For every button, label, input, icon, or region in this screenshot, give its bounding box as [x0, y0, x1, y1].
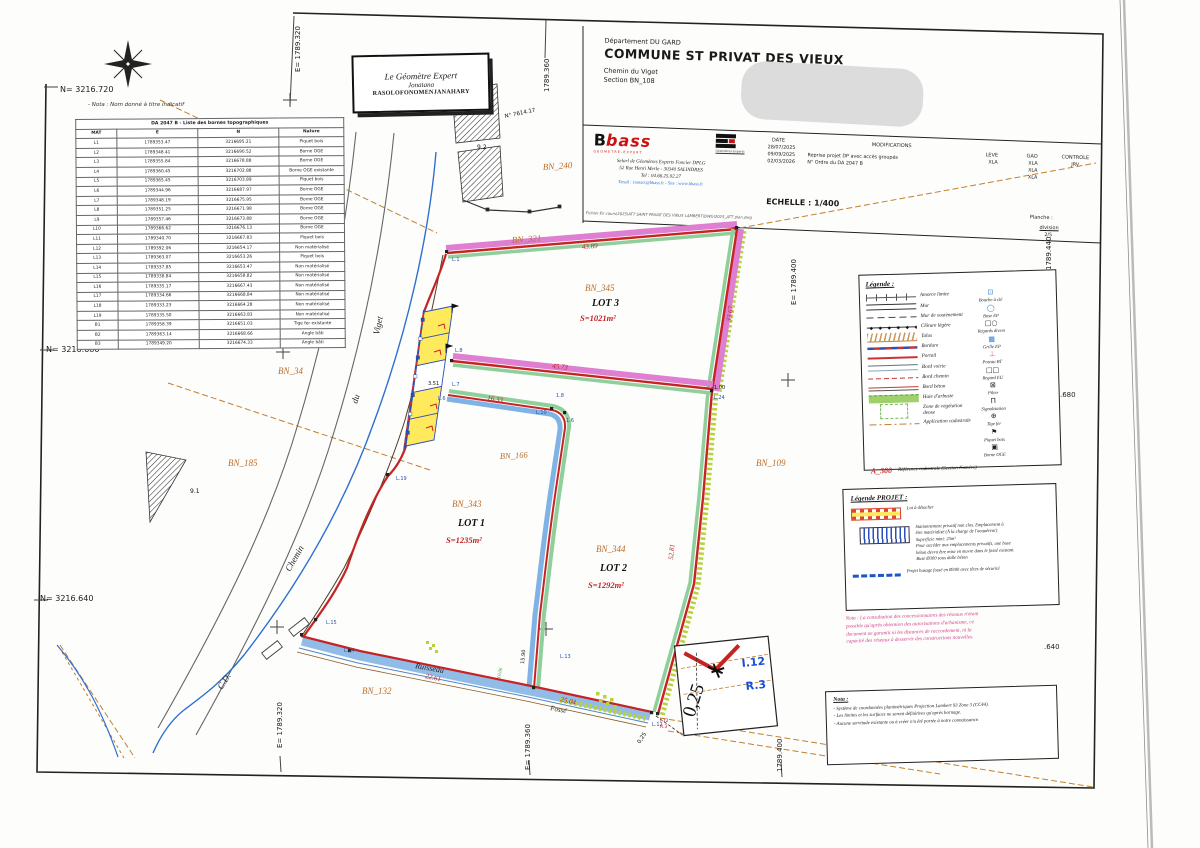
- legend-item-label: Zone de végétation dense: [923, 404, 971, 416]
- table-cell: L6: [76, 186, 117, 196]
- redaction-blob: [740, 60, 925, 128]
- legend-symbol-item: ◯Buse EP: [970, 304, 1011, 318]
- table-cell: 1789351.25: [117, 205, 198, 215]
- plan-label: 1.8: [556, 393, 564, 399]
- table-cell: 3216687.97: [198, 185, 279, 195]
- plan-label: Viget: [371, 315, 385, 335]
- plan-label: LOT 2: [599, 563, 627, 574]
- ge-logo: Géomètres-Experts: [716, 134, 746, 154]
- legend-title: Légende :: [865, 275, 1049, 288]
- plan-label: L.8: [455, 348, 463, 354]
- table-cell: Non matérialisé: [280, 281, 345, 291]
- plan-label: BN_321: [511, 233, 541, 245]
- legend-symbol-item: □□Regard EU: [972, 366, 1013, 380]
- plan-label: BN_345: [585, 283, 615, 293]
- table-cell: 3216675.95: [198, 195, 279, 205]
- table-cell: 3216653.47: [199, 262, 280, 272]
- stamp-lastname: RASOLOFONOMENJANAHARY: [373, 87, 470, 96]
- plan-label: L.24: [714, 395, 725, 401]
- table-cell: 1789358.39: [118, 320, 199, 330]
- address-label: Chemin du Viget: [604, 67, 658, 77]
- legend-item-label: Bord béton: [922, 384, 945, 390]
- table-cell: 3216674.33: [199, 339, 280, 349]
- table-cell: L7: [76, 196, 117, 206]
- plan-label: N= 3216.640: [40, 594, 93, 603]
- legend-item-label: Talus: [921, 334, 932, 340]
- table-cell: L12: [77, 244, 118, 254]
- legend-symbol-item: ⚑Piquet bois: [974, 428, 1015, 442]
- table-cell: 1789344.96: [117, 186, 198, 196]
- cloture-line-sample: [867, 323, 917, 331]
- plan-label: BN_166: [500, 450, 529, 461]
- table-cell: 3216671.98: [198, 204, 279, 214]
- plan-label: BN_343: [452, 499, 482, 509]
- plan-label: 52.81: [667, 544, 676, 560]
- project-item-text: Projet busage fossé en Ø300 avec têtes d…: [907, 565, 1000, 574]
- plan-label: L.1: [452, 257, 460, 263]
- plan-label: N= 3216.720: [60, 85, 113, 94]
- legend-item-label: Mur de soutènement: [920, 313, 962, 320]
- table-cell: 1789366.62: [117, 224, 198, 234]
- table-cell: 1789338.84: [118, 272, 199, 282]
- legend-symbol-label: Bouche à clé: [979, 297, 1003, 303]
- plan-label: 1789.440: [1045, 237, 1053, 270]
- plan-label: 45.73: [552, 362, 569, 372]
- legend-symbol-label: Regard EU: [982, 375, 1003, 381]
- table-cell: L15: [77, 273, 118, 283]
- mursout-line-sample: [866, 313, 916, 321]
- parking-stalls: [404, 304, 458, 450]
- plan-label: - Nota : Nom donné à titre indicatif: [88, 101, 185, 108]
- plan-label: 1789.360: [543, 59, 551, 92]
- table-cell: 1789335.50: [118, 310, 199, 320]
- legend-box: Légende : Amorce limiteMurMur de soutène…: [858, 269, 1061, 470]
- table-cell: 1789363.14: [118, 330, 199, 340]
- table-cell: L13: [77, 253, 118, 263]
- mur-line-sample: [866, 303, 916, 310]
- plan-label: I.12: [660, 718, 669, 724]
- plan-label: S=1021m²: [580, 313, 616, 323]
- planche-name: division: [1039, 225, 1058, 232]
- plan-label: E= 1789.360: [524, 724, 532, 770]
- table-cell: 3216664.28: [199, 300, 280, 310]
- plan-label: du: [349, 392, 361, 404]
- coordinate-table: DA 2047 B - Liste des bornes topographiq…: [75, 117, 346, 350]
- zoneveg-line-sample: [880, 404, 908, 420]
- legend-item-label: Mur: [920, 303, 929, 309]
- date-column-label: DATE: [772, 137, 785, 143]
- table-cell: L1: [76, 138, 117, 148]
- hatched-triangle: [146, 452, 186, 522]
- table-cell: L19: [77, 311, 118, 321]
- table-cell: 1789348.41: [117, 147, 198, 157]
- table-cell: B1: [77, 321, 118, 331]
- legend-symbol-item: ▦Grille EP: [971, 335, 1012, 349]
- table-cell: Borne OGE existante: [279, 166, 344, 176]
- file-path-line: Fichier En cours\2025\ATT SAINT PRIVAT D…: [586, 210, 752, 220]
- plan-label: 15.90: [520, 649, 527, 664]
- project-legend-items: Lot à détacherStationnement privatif non…: [851, 501, 1051, 577]
- table-cell: 1789355.84: [117, 157, 198, 167]
- table-cell: Piquet bois: [279, 233, 344, 243]
- gao-values: XLAXLAXLA: [1028, 161, 1038, 182]
- table-cell: 1789340.70: [118, 234, 199, 244]
- plan-label: 1.00: [714, 385, 725, 391]
- bbass-tagline: GEOMETRE-EXPERT: [593, 149, 651, 155]
- column-header: E: [117, 128, 198, 138]
- legend-symbol-item: □○Regards divers: [971, 320, 1012, 334]
- legend-item-label: Application cadastrale: [923, 419, 971, 426]
- project-legend-item: Projet busage fossé en Ø300 avec têtes d…: [853, 564, 1051, 578]
- legend-symbol-items: ⊡Bouche à clé◯Buse EP□○Regards divers▦Gr…: [968, 287, 1055, 460]
- table-cell: 3216653.26: [199, 252, 280, 262]
- bbass-logo: Bbass GEOMETRE-EXPERT: [593, 130, 651, 155]
- beton-line-sample: [868, 384, 918, 392]
- table-cell: 3216695.21: [198, 137, 279, 147]
- table-cell: L3: [76, 158, 117, 168]
- table-cell: L16: [77, 282, 118, 292]
- plan-label: Fossé: [549, 704, 568, 715]
- table-cell: 1789392.06: [118, 243, 199, 253]
- table-cell: 3216651.03: [199, 319, 280, 329]
- legend-symbol-label: Signalisation: [981, 406, 1005, 412]
- plan-label: E= 1789.320: [276, 702, 284, 748]
- plan-label: BN_344: [596, 544, 626, 554]
- regard-eu-icon: □□: [986, 367, 999, 374]
- legend-item-label: Bord chemin: [922, 374, 949, 380]
- legend-symbol-item: ΠSignalisation: [973, 397, 1014, 411]
- table-cell: 1789363.07: [118, 253, 199, 263]
- revision-date: 02/03/2026: [767, 159, 795, 167]
- plan-label: L.19: [396, 476, 407, 482]
- revision-dates: 28/07/202509/09/202502/03/2026: [767, 145, 795, 167]
- plan-label: L.14: [344, 648, 355, 654]
- column-header: N: [198, 128, 279, 138]
- plan-label: BN_109: [756, 458, 786, 468]
- cadastral-reference-label: Référence cadastrale (Section Numéro): [898, 466, 977, 473]
- table-cell: Borne OGE: [279, 194, 344, 204]
- plan-label: L.15: [326, 620, 337, 626]
- table-cell: 3216654.17: [199, 243, 280, 253]
- table-cell: 3216663.83: [199, 310, 280, 320]
- table-cell: 3216702.88: [198, 166, 279, 176]
- table-cell: Non matérialisé: [280, 242, 345, 252]
- table-cell: Angle bâti: [280, 338, 345, 348]
- legend-symbol-label: Piquet bois: [984, 437, 1005, 443]
- signalisation-icon: Π: [991, 398, 996, 405]
- legend-symbol-label: Tige fer: [987, 421, 1001, 426]
- project-legend-title: Légende PROJET :: [851, 489, 1049, 503]
- leve-value: XLA: [988, 160, 998, 167]
- coordinate-table-wrap: DA 2047 B - Liste des bornes topographiq…: [75, 117, 346, 350]
- plan-label: L.6: [438, 396, 446, 402]
- legend-symbol-item: ⊕Tige fer: [973, 413, 1014, 427]
- legend-symbol-label: Pilier: [988, 390, 999, 395]
- plan-label: BN_240: [542, 160, 573, 172]
- plan-label: L.13: [560, 654, 571, 660]
- table-cell: B3: [77, 340, 118, 350]
- grille-ep-icon: ▦: [988, 336, 995, 343]
- voirie-line-sample: [868, 365, 918, 372]
- table-cell: L10: [76, 225, 117, 235]
- table-cell: L2: [76, 148, 117, 158]
- table-cell: Piquet bois: [279, 175, 344, 185]
- scale-label: ECHELLE : 1/400: [766, 197, 839, 208]
- table-cell: 3216690.52: [198, 147, 279, 157]
- legend-symbol-label: Regards divers: [978, 328, 1006, 334]
- legend-symbol-label: Poteau BT: [982, 359, 1002, 365]
- table-cell: 3216658.82: [199, 272, 280, 282]
- legend-item-label: Amorce limite: [920, 293, 949, 299]
- legend-symbol-label: Borne OGE: [984, 452, 1006, 458]
- table-cell: 1789335.17: [118, 282, 199, 292]
- table-cell: L8: [76, 205, 117, 215]
- legend-item-label: Clôture légère: [921, 323, 951, 329]
- table-cell: Borne OGE: [279, 214, 344, 224]
- plan-label: BN_34: [278, 366, 304, 376]
- project-legend-box: Légende PROJET : Lot à détacherStationne…: [842, 483, 1059, 611]
- cadastral-reference-code: A_300: [871, 466, 893, 476]
- table-cell: 3216667.83: [199, 233, 280, 243]
- legend-item-label: Haie d'arbuste: [923, 394, 954, 400]
- section-label: Section BN_108: [603, 76, 654, 85]
- table-cell: 3216667.43: [199, 281, 280, 291]
- firm-address: Selarl de Géomètres Experts Foncier DPLG…: [581, 158, 742, 189]
- chemin-line-sample: [868, 374, 918, 382]
- table-cell: 1789333.23: [118, 301, 199, 311]
- buse-ep-icon: ◯: [987, 305, 995, 312]
- amorce-line-sample: [866, 293, 916, 301]
- table-cell: 1789349.20: [118, 339, 199, 349]
- plan-label: C.D.: [215, 671, 232, 691]
- busage-sample: [853, 573, 901, 577]
- table-cell: Non matérialisé: [280, 300, 345, 310]
- table-cell: Piquet bois: [280, 252, 345, 262]
- gao-value: XLA: [1028, 175, 1038, 182]
- table-cell: 3216676.13: [198, 224, 279, 234]
- plan-label: S=1235m²: [446, 535, 482, 545]
- table-cell: Angle bâti: [280, 329, 345, 339]
- plan-label: LOT 3: [591, 298, 619, 309]
- bordure-line-sample: [867, 344, 917, 352]
- table-row: B31789349.203216674.33Angle bâti: [77, 338, 345, 349]
- table-cell: L14: [77, 263, 118, 273]
- title-block: Département DU GARD COMMUNE ST PRIVAT DE…: [577, 26, 1101, 240]
- modifications-label: MODIFICATIONS: [872, 142, 912, 149]
- regards-divers-icon: □○: [985, 320, 998, 327]
- table-cell: 1789365.45: [117, 176, 198, 186]
- application-line-sample: [869, 420, 919, 428]
- plan-label: BN_132: [362, 686, 392, 696]
- plan-label: L.10: [536, 410, 547, 416]
- table-cell: Non matérialisé: [280, 261, 345, 271]
- controle-value: JRV: [1071, 163, 1079, 170]
- plan-label: .640: [1044, 643, 1060, 651]
- table-cell: Borne OGE: [279, 156, 344, 166]
- nota-box: Nota : - Système de coordonnées planimét…: [825, 685, 1059, 765]
- controle-label: CONTROLE: [1061, 154, 1089, 161]
- plan-label: 9.1: [190, 488, 200, 495]
- paper-edge: [1120, 0, 1152, 848]
- plan-label: .680: [1060, 391, 1076, 399]
- table-cell: 1789360.45: [117, 167, 198, 177]
- table-cell: Non matérialisé: [280, 290, 345, 300]
- table-cell: L4: [76, 167, 117, 177]
- scanned-survey-plan: N= 3216.720N= 3216.680N= 3216.640E= 1789…: [0, 0, 1200, 848]
- table-cell: Tige fer existante: [280, 319, 345, 329]
- plan-label: 33.67: [725, 305, 735, 323]
- table-cell: Borne OGE: [279, 204, 344, 214]
- bbass-logo-bass: bass: [606, 131, 652, 151]
- table-cell: L11: [77, 234, 118, 244]
- table-cell: L5: [76, 177, 117, 187]
- table-cell: 3216703.89: [198, 176, 279, 186]
- table-cell: L9: [76, 215, 117, 225]
- project-item-text: Lot à détacher: [907, 504, 934, 511]
- table-cell: Borne OGE: [279, 185, 344, 195]
- legend-item-label: Portail: [922, 354, 937, 360]
- plan-label: E= 1789.400: [790, 259, 798, 305]
- plan-label: I.12: [741, 655, 766, 670]
- plan-label: 9.2: [477, 144, 487, 151]
- plan-label: N° 7614.17: [504, 107, 536, 119]
- table-cell: Piquet bois: [279, 137, 344, 147]
- borne-oge-icon: ▣: [991, 444, 998, 451]
- legend-item-label: Bord voirie: [922, 364, 946, 370]
- table-cell: Borne OGE: [279, 146, 344, 156]
- project-item-text: Stationnement privatif non clos. Emplace…: [915, 521, 1014, 562]
- table-cell: 1789353.47: [117, 138, 198, 148]
- plan-label: R.3: [745, 678, 767, 693]
- planche-label: Planche :: [1030, 215, 1053, 222]
- column-header: Nature: [279, 127, 344, 137]
- parking-sample: [859, 526, 909, 544]
- table-cell: Non matérialisé: [280, 309, 345, 319]
- legend-line-items: Amorce limiteMurMur de soutènementClôtur…: [866, 290, 973, 464]
- plan-label: E= 1789.320: [294, 26, 302, 72]
- bouche-a-cle-icon: ⊡: [987, 289, 993, 296]
- legend-symbol-item: ⊥Poteau BT: [971, 351, 1012, 365]
- legend-symbol-label: Buse EP: [983, 312, 999, 317]
- poteau-bt-icon: ⊥: [989, 351, 995, 358]
- legend-symbol-item: ⊡Bouche à clé: [970, 289, 1011, 303]
- plan-label: BN_185: [228, 458, 258, 468]
- table-cell: 3216668.84: [199, 291, 280, 301]
- plan-label: 10.06: [497, 667, 504, 680]
- plan-label: 0,25: [637, 731, 649, 745]
- table-cell: B2: [77, 330, 118, 340]
- project-legend-item: Stationnement privatif non clos. Emplace…: [851, 520, 1050, 564]
- table-cell: 3216668.66: [199, 329, 280, 339]
- pilier-icon: ⊠: [990, 382, 996, 389]
- ge-caption: Géomètres-Experts: [716, 149, 745, 154]
- leve-label: LEVE: [985, 152, 998, 158]
- table-cell: 1789357.46: [117, 215, 198, 225]
- plan-label: 1789.400: [776, 739, 784, 772]
- nota-items: - Système de coordonnées planimétriques …: [833, 700, 1050, 728]
- column-header: MAT: [76, 129, 117, 139]
- plan-label: S=1292m²: [588, 580, 624, 590]
- table-cell: L18: [77, 301, 118, 311]
- lot-sample: [851, 507, 901, 520]
- table-cell: Non matérialisé: [280, 271, 345, 281]
- plan-label: 43.89: [582, 242, 599, 251]
- plan-label: R.3: [660, 724, 667, 730]
- table-cell: L17: [77, 292, 118, 302]
- table-cell: 1789334.66: [118, 291, 199, 301]
- surveyor-stamp: Le Géomètre Expert Jonatana RASOLOFONOME…: [351, 53, 490, 114]
- haie-line-sample: [869, 394, 919, 403]
- tige-fer-icon: ⊕: [991, 413, 997, 420]
- gao-label: GAO: [1026, 153, 1037, 159]
- legend-symbol-item: ⊠Pilier: [972, 382, 1013, 396]
- modifications-list: Reprise projet DP avec accès groupésN° O…: [807, 152, 898, 169]
- portail-line-sample: [868, 354, 918, 362]
- table-cell: 3216678.88: [198, 156, 279, 166]
- plan-label: 3.51: [428, 381, 439, 387]
- legend-symbol-item: ▣Borne OGE: [974, 444, 1015, 458]
- compass-rose-icon: [104, 40, 152, 88]
- plan-label: 1.6: [566, 418, 574, 424]
- table-cell: 1789348.19: [117, 195, 198, 205]
- table-cell: 3216673.88: [198, 214, 279, 224]
- planche-number: 2/5: [1044, 233, 1052, 240]
- plan-label: L.7: [452, 382, 460, 388]
- table-cell: Borne OGE: [279, 223, 344, 233]
- project-legend-item: Lot à détacher: [851, 501, 1049, 521]
- legend-symbol-label: Grille EP: [983, 343, 1001, 349]
- bbass-logo-b: B: [594, 130, 607, 149]
- plan-label: LOT 1: [457, 518, 485, 529]
- table-cell: 1789337.85: [118, 262, 199, 272]
- talus-line-sample: [867, 333, 917, 343]
- legend-item-label: Bordure: [921, 344, 938, 350]
- piquet-bois-icon: ⚑: [991, 429, 997, 436]
